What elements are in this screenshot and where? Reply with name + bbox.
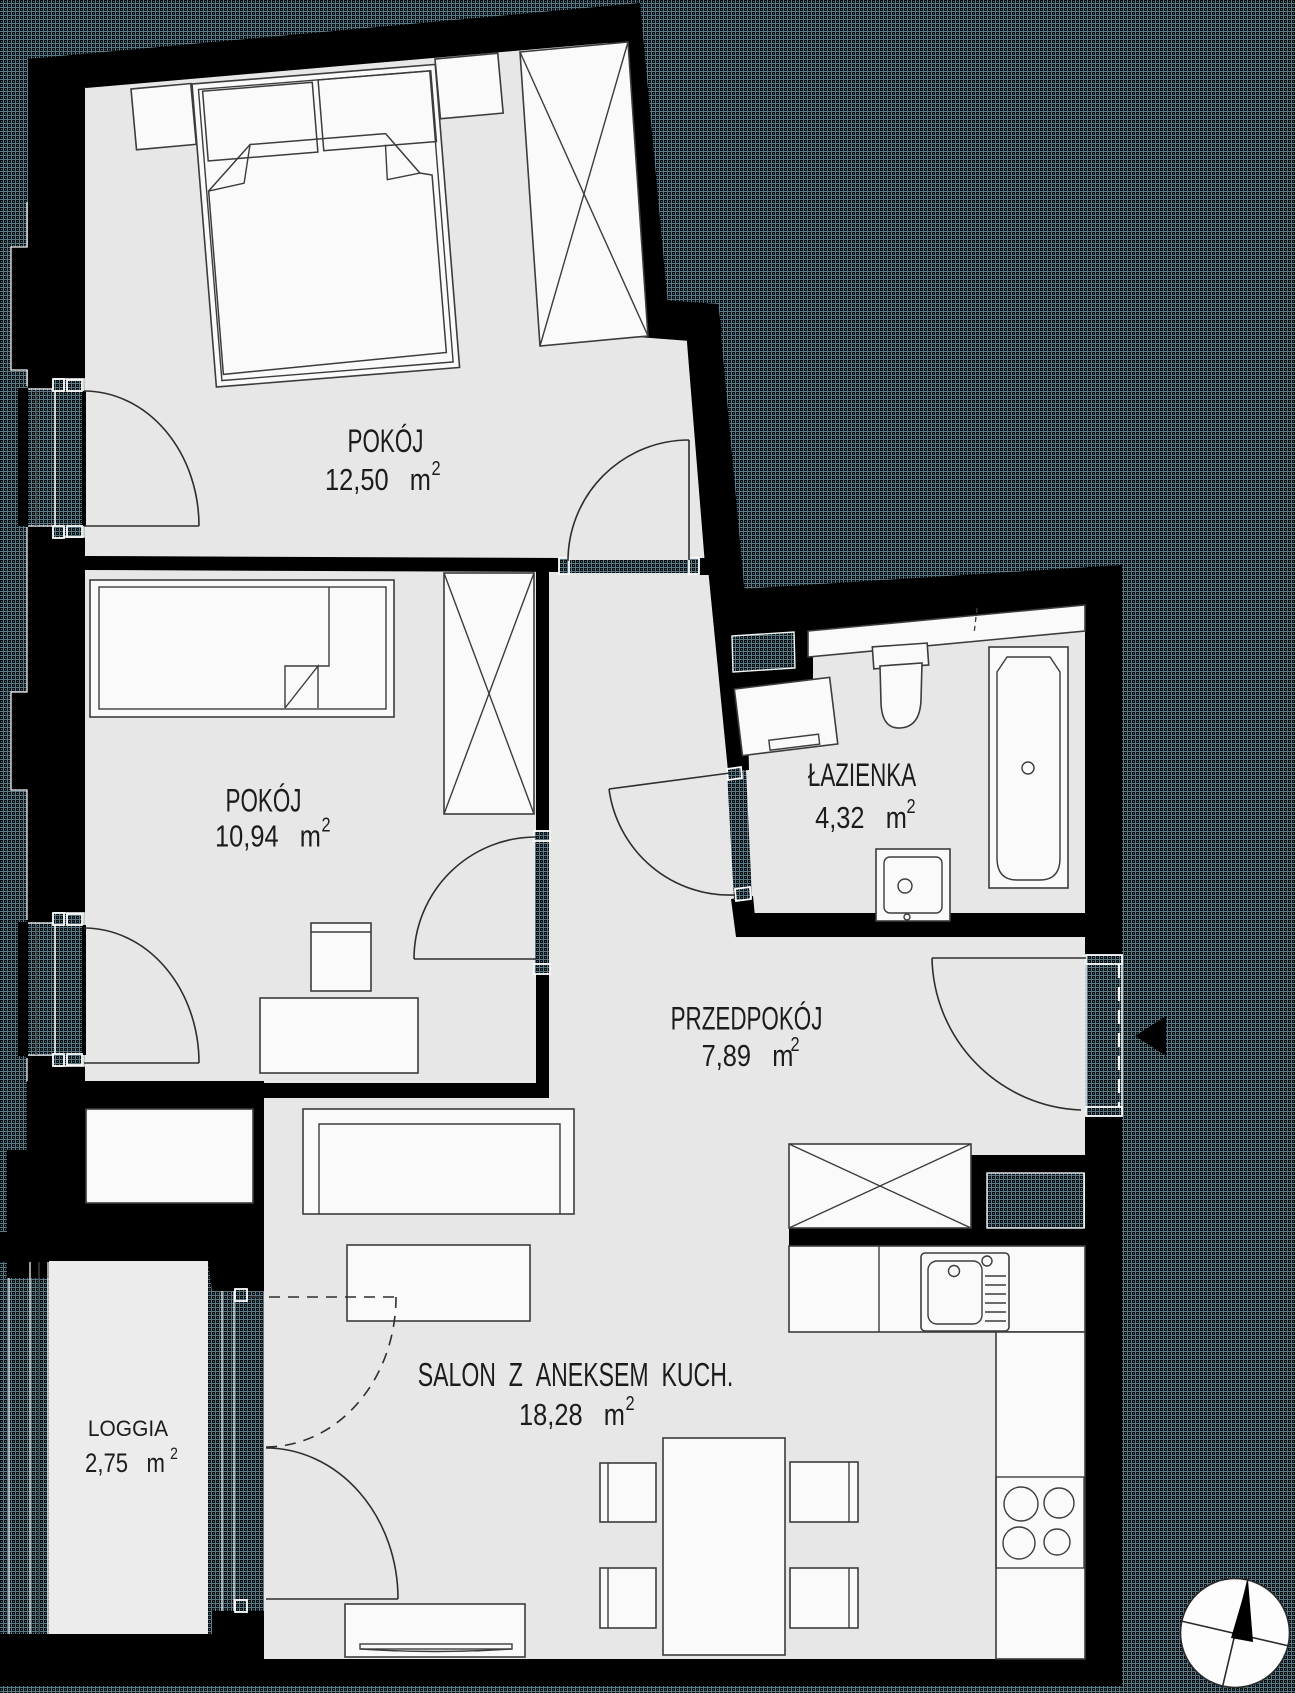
svg-text:18,28 m: 18,28 m <box>519 1398 625 1433</box>
svg-text:2: 2 <box>906 794 915 817</box>
svg-text:12,50 m: 12,50 m <box>325 463 431 498</box>
svg-text:2: 2 <box>625 1391 634 1414</box>
svg-text:2: 2 <box>431 456 440 479</box>
svg-text:2: 2 <box>790 1032 799 1055</box>
svg-text:ŁAZIENKA: ŁAZIENKA <box>808 757 917 793</box>
svg-text:7,89 m: 7,89 m <box>702 1039 794 1074</box>
svg-text:POKÓJ: POKÓJ <box>348 423 424 459</box>
svg-text:4,32 m: 4,32 m <box>815 801 907 836</box>
svg-text:10,94 m: 10,94 m <box>215 819 321 854</box>
svg-text:POKÓJ: POKÓJ <box>226 783 302 819</box>
svg-text:2: 2 <box>170 1445 178 1464</box>
svg-text:PRZEDPOKÓJ: PRZEDPOKÓJ <box>671 1001 823 1037</box>
svg-text:SALON Z ANEKSEM KUCH.: SALON Z ANEKSEM KUCH. <box>418 1357 734 1394</box>
svg-text:2,75 m: 2,75 m <box>85 1449 165 1479</box>
svg-text:2: 2 <box>321 813 330 836</box>
svg-text:LOGGIA: LOGGIA <box>88 1415 169 1441</box>
